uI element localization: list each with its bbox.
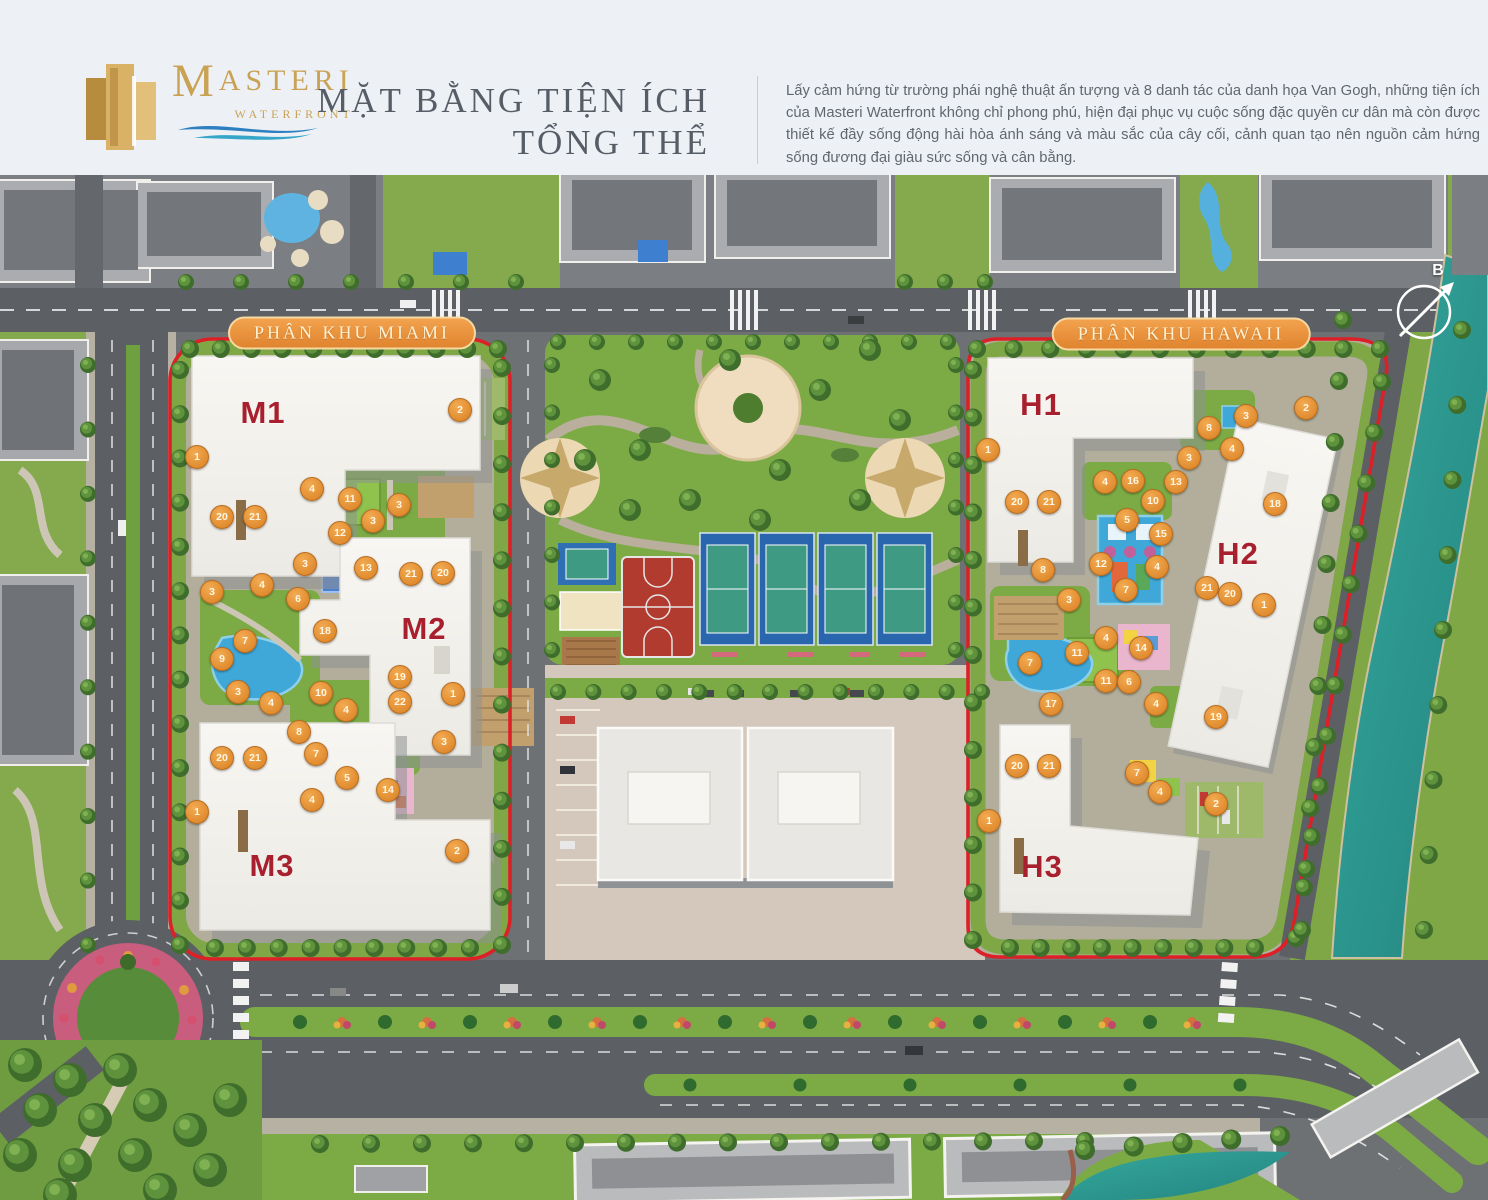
site-plan: PHÂN KHU MIAMIPHÂN KHU HAWAIIM1M2M3H1H2H… [0, 175, 1488, 1200]
intro-paragraph: Lấy cảm hứng từ trường phái nghệ thuật ấ… [786, 80, 1480, 169]
zone-miami [170, 339, 534, 959]
page-title: MẶT BẰNG TIỆN ÍCH TỔNG THỂ [290, 80, 710, 164]
page-title-line1: MẶT BẰNG TIỆN ÍCH [290, 80, 710, 122]
page-title-line2: TỔNG THỂ [290, 122, 710, 164]
clubhouse-east [748, 728, 893, 880]
buildings-logo-icon [84, 58, 162, 166]
basketball-court [622, 557, 694, 657]
site-plan-rendering [0, 175, 1488, 1200]
header-divider [757, 76, 758, 164]
masterplan-poster: MASTERI WATERFRONT MẶT BẰNG TIỆN ÍCH TỔN… [0, 0, 1488, 1200]
star-plaza-east [865, 438, 945, 518]
main-road [0, 288, 1488, 332]
clubhouse-west [598, 728, 742, 880]
central-plaza [545, 665, 985, 960]
north-neighbourhood [0, 175, 1488, 288]
header: MASTERI WATERFRONT MẶT BẰNG TIỆN ÍCH TỔN… [0, 0, 1488, 175]
central-park [520, 335, 960, 679]
